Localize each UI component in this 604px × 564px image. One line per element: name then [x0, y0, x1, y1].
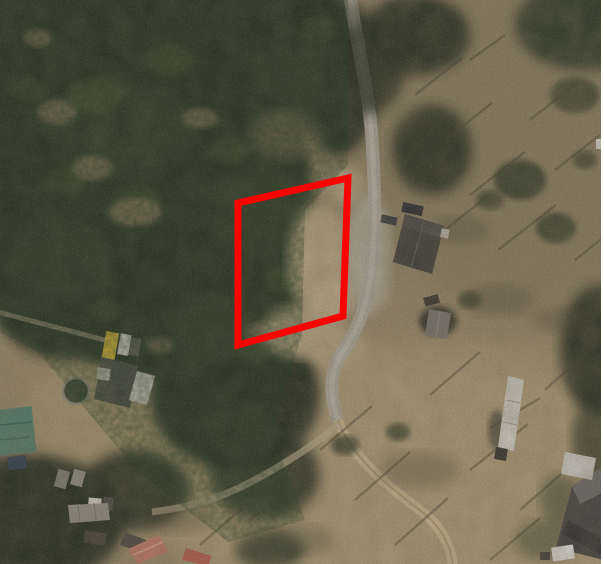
texture-grain-light — [0, 0, 604, 564]
photo-texture — [0, 0, 604, 564]
aerial-photo — [0, 0, 604, 564]
aerial-photo-canvas — [0, 0, 604, 564]
